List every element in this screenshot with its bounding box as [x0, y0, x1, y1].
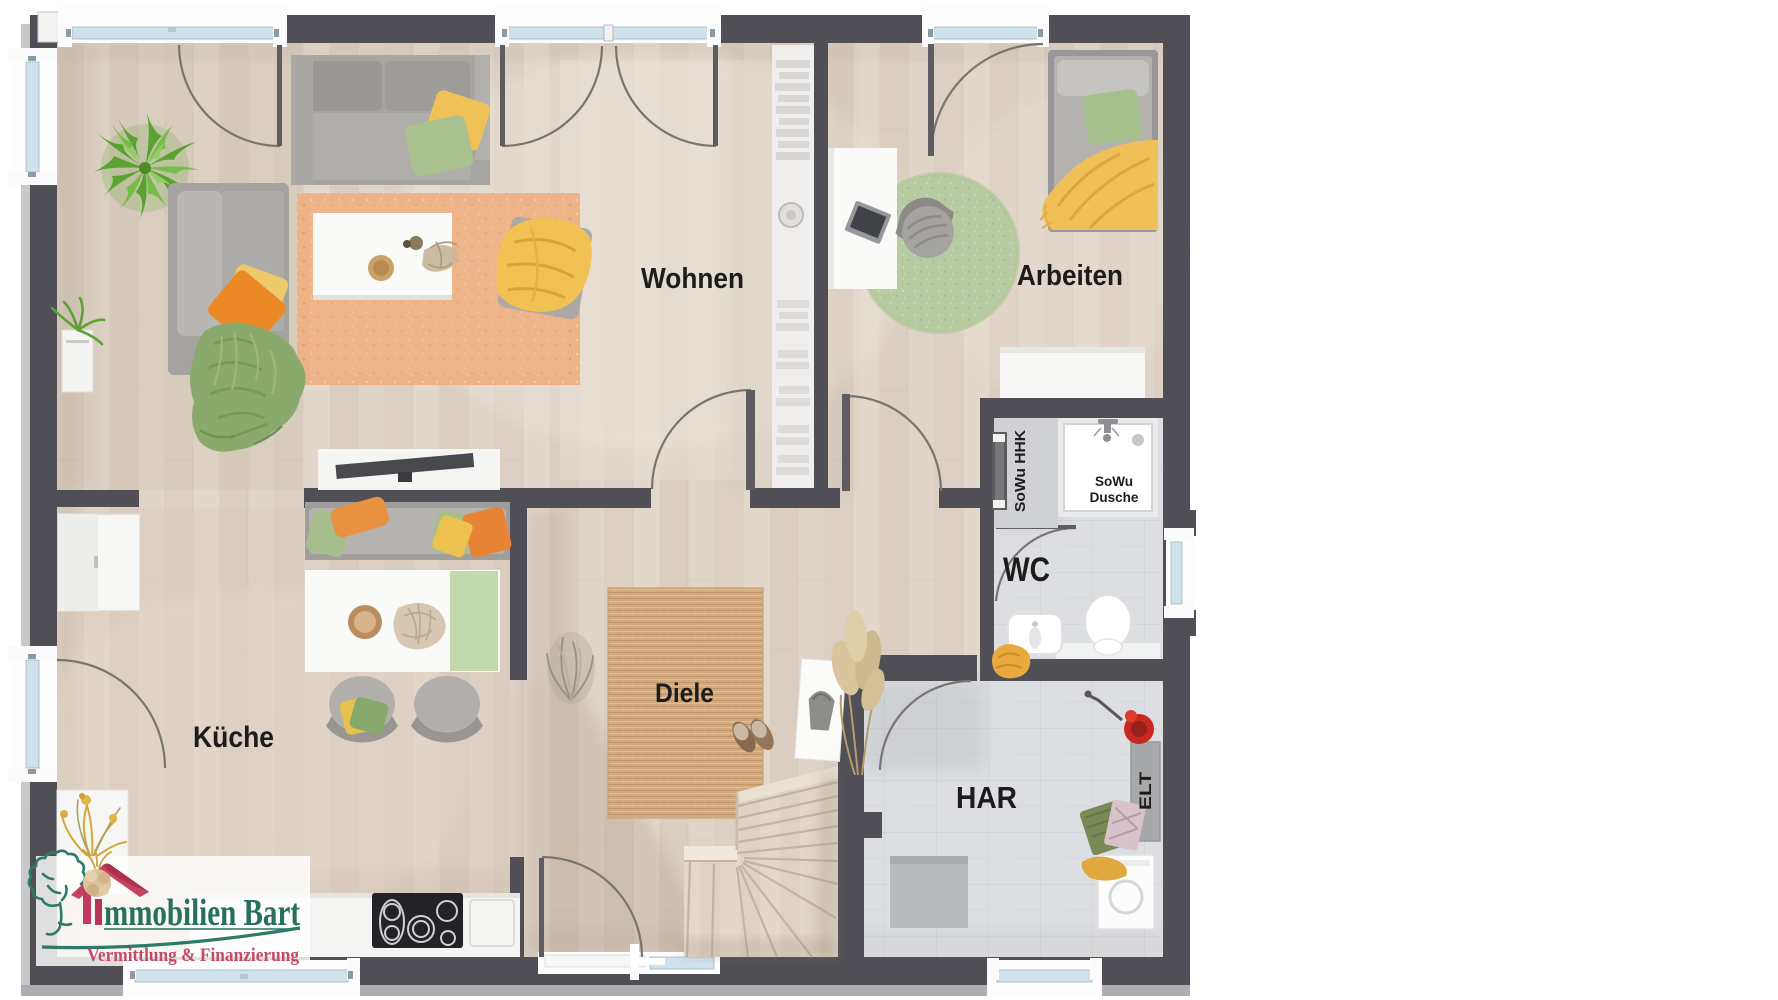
svg-text:Vermittlung & Finanzierung: Vermittlung & Finanzierung: [87, 945, 299, 966]
svg-text:SoWu: SoWu: [1095, 474, 1133, 489]
svg-text:Wohnen: Wohnen: [641, 263, 744, 295]
svg-text:SoWu HHK: SoWu HHK: [1012, 430, 1029, 512]
svg-text:Küche: Küche: [193, 721, 274, 754]
svg-text:ELT: ELT: [1136, 771, 1155, 810]
svg-text:mmobilien Bart: mmobilien Bart: [104, 892, 300, 934]
svg-text:Diele: Diele: [655, 678, 714, 708]
svg-text:WC: WC: [1003, 551, 1050, 589]
svg-text:HAR: HAR: [956, 780, 1017, 815]
svg-text:Dusche: Dusche: [1090, 490, 1139, 505]
svg-text:Arbeiten: Arbeiten: [1017, 260, 1123, 292]
